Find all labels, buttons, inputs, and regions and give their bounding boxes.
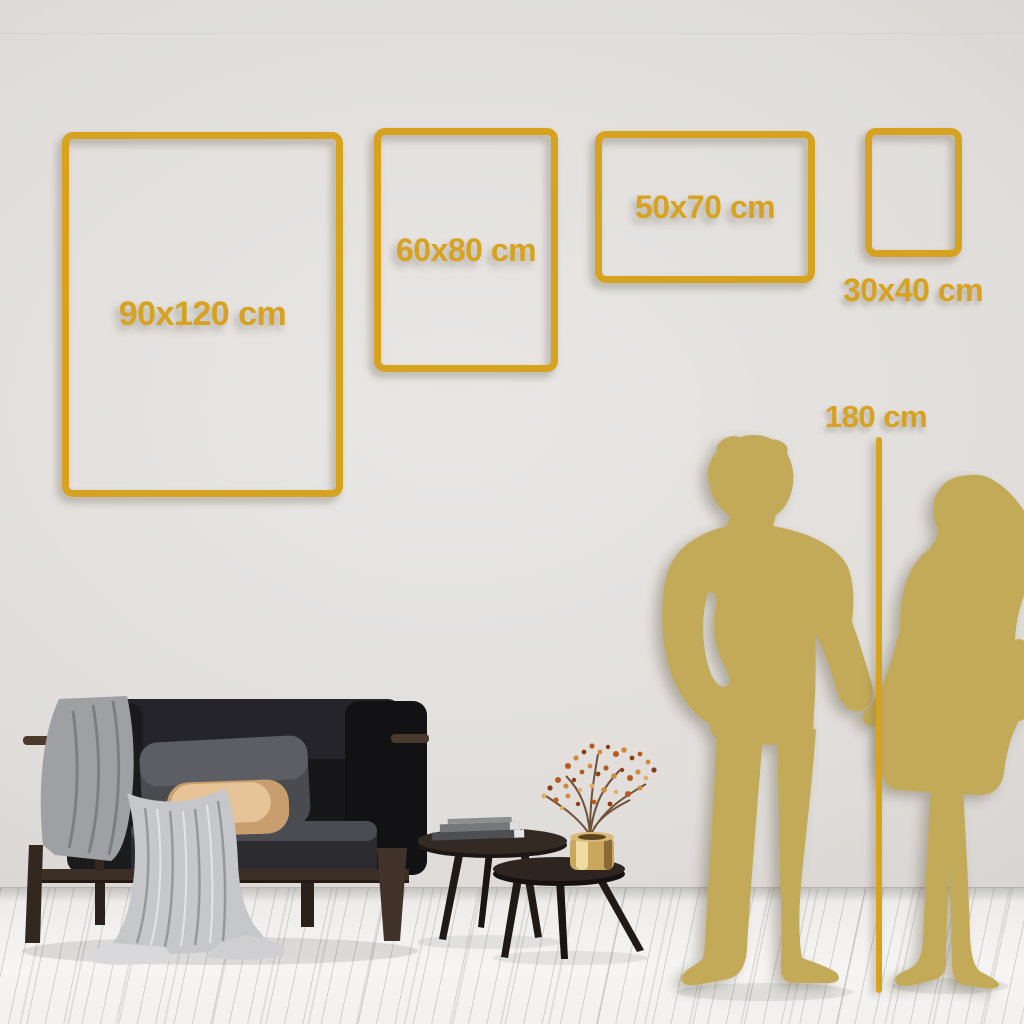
size-frame-90x120: 90x120 cm	[62, 132, 343, 497]
size-label-30x40: 30x40 cm	[833, 272, 993, 309]
books	[432, 816, 525, 840]
size-frame-30x40	[865, 128, 962, 257]
table-leg	[556, 880, 568, 959]
figure-shadow	[677, 983, 853, 1001]
size-frame-50x70: 50x70 cm	[595, 131, 815, 283]
table-leg	[596, 878, 644, 952]
man-silhouette	[662, 432, 873, 985]
brass-vase	[570, 832, 614, 870]
ceiling-line	[0, 33, 1024, 35]
coffee-tables	[418, 738, 668, 966]
couple-silhouette	[650, 428, 1024, 1008]
size-label-50x70: 50x70 cm	[635, 189, 775, 226]
table-leg	[439, 850, 464, 940]
man-right-leg	[777, 729, 839, 983]
woman-right-leg	[947, 790, 999, 989]
size-frame-60x80: 60x80 cm	[374, 128, 558, 372]
man-left-leg	[681, 728, 763, 985]
dried-branch	[542, 743, 657, 835]
sofa-leg	[301, 881, 314, 927]
sofa-front-left-leg	[25, 845, 43, 943]
woman-right-arm	[1019, 646, 1022, 714]
size-label-90x120: 90x120 cm	[119, 295, 287, 334]
sofa-front-right-leg	[377, 848, 407, 941]
table-leg	[478, 852, 493, 928]
table-shadow	[492, 951, 648, 965]
woman-silhouette	[863, 475, 1024, 989]
size-label-60x80: 60x80 cm	[396, 232, 536, 269]
poster-size-guide-image: 90x120 cm 60x80 cm 50x70 cm 30x40 cm	[0, 0, 1024, 1024]
sofa	[15, 693, 435, 985]
height-reference-line	[876, 437, 882, 993]
woman-left-leg	[895, 788, 953, 986]
